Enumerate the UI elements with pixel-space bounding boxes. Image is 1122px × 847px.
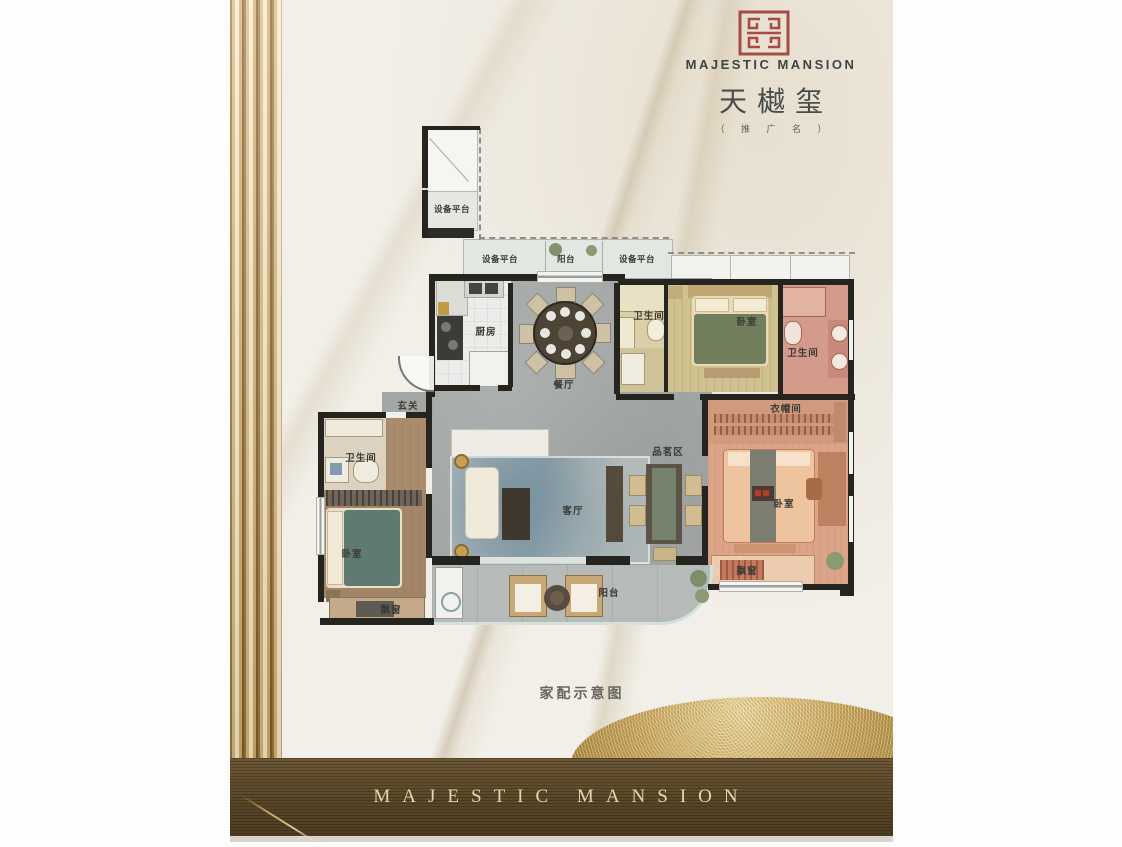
window [849,496,853,542]
tray-item [755,490,761,496]
wall-segment [426,494,432,558]
poster-page: { "brand": { "seal_icon": "majestic-mans… [0,0,1122,842]
wall-segment [426,390,432,468]
wall-segment [422,128,428,188]
wall-segment [508,283,513,387]
pillow [328,512,342,584]
bed-bench [734,544,796,553]
cutting-board [438,302,449,315]
room-label-equipment-platform-right: 设备平台 [619,253,655,265]
sink [832,354,847,369]
wall-segment [320,618,434,625]
stove-burner [441,322,451,332]
sliding-door [480,557,586,563]
window [849,432,853,474]
wall-segment [616,394,674,400]
wardrobe [326,490,422,506]
room-label-equipment-platform-left: 设备平台 [482,253,518,265]
window-mullion [730,256,731,280]
tea-table-runner [652,468,676,540]
dining-chair [596,324,610,342]
vanity [620,318,634,348]
room-label-foyer: 玄关 [397,398,418,412]
window [538,272,602,282]
entry-door-arc [398,356,434,392]
display-cabinet [606,466,623,542]
plate [575,311,585,321]
wall-segment [432,556,480,565]
wardrobe-row [714,426,834,435]
window [317,498,324,554]
wall-segment [700,394,855,400]
lounge-chair-cushion [515,584,541,612]
wall-segment [676,556,708,565]
sofa [466,468,498,538]
plan-caption: 家配示意图 [540,683,625,703]
room-label-bedroom-master: 卧室 [773,496,794,510]
wall-segment [422,126,480,130]
wardrobe-row [714,414,834,423]
wall-segment [664,283,668,392]
table-centerpiece [558,326,573,341]
bed-bench [704,368,760,378]
tea-stool [654,548,676,560]
room-label-cloakroom: 衣帽间 [770,401,802,415]
wall-segment [318,412,432,418]
wall-segment [432,385,480,391]
room-label-bedroom-north: 卧室 [736,314,757,328]
plate [581,328,591,338]
plate [561,349,571,359]
footer-band: MAJESTIC MANSION [230,758,893,836]
refrigerator [470,352,510,386]
wall-segment [614,283,620,394]
plant [690,570,707,587]
plant [586,245,597,256]
pillow [696,299,728,311]
wall-segment [428,228,474,238]
plate [546,311,556,321]
lounge-chair-cushion [571,584,597,612]
gold-fluted-side-bar [230,0,282,758]
balcony-table-top [550,591,564,605]
dining-chair [556,364,575,378]
toilet [785,322,801,344]
wall-segment [778,283,783,400]
floor-plan: 设备平台 设备平台 阳台 设备平台 厨房 餐厅 [0,0,1122,842]
window-band [672,256,849,280]
room-label-balcony-south: 阳台 [598,585,619,599]
room-label-equipment-platform-tower: 设备平台 [434,203,470,215]
toilet [648,320,664,340]
tea-chair [686,476,701,495]
wall-segment [702,400,708,456]
floor-lamp [456,456,467,467]
parapet-dashed-line [668,252,855,254]
plate [546,344,556,354]
parapet-dashed-line [479,237,669,239]
room-label-bedroom-west: 卧室 [341,546,362,560]
wall-segment [586,556,630,565]
plate [575,344,585,354]
room-label-bay-window-master: 飘窗 [736,563,757,577]
wall-segment [702,486,708,564]
plant [695,589,709,603]
room-label-tea-area: 品茗区 [652,444,684,458]
room-label-bay-window-west: 飘窗 [380,602,401,616]
sink-basin [485,283,498,294]
room-label-kitchen: 厨房 [475,324,496,338]
sink-basin [330,463,342,475]
room-label-living-room: 客厅 [562,503,583,517]
bathtub [326,420,382,436]
stove-burner [448,340,458,350]
shower [783,288,825,316]
tray-item [763,490,769,496]
window [720,582,802,591]
divider-line [602,241,603,277]
room-label-bathroom-north: 卫生间 [633,308,665,322]
tea-chair [686,506,701,525]
wall-segment [498,385,512,391]
sink-basin [469,283,482,294]
equipment-room [427,130,477,192]
plate [560,307,570,317]
room-label-bathroom-east: 卫生间 [787,345,819,359]
dining-chair [557,288,575,301]
dining-chair [520,325,533,343]
window [849,320,853,360]
tv-console [452,430,548,456]
window-mullion [790,256,791,280]
tea-chair [630,476,645,495]
wardrobe-column [834,402,846,442]
room-label-bathroom-west: 卫生间 [345,450,377,464]
sink [832,326,847,341]
plate [540,328,550,338]
stove [437,316,463,360]
footer-brand-text: MAJESTIC MANSION [230,758,893,836]
room-label-dining-room: 餐厅 [553,377,574,391]
pillow [734,299,766,311]
nightstand [668,286,682,299]
coffee-table [502,488,530,540]
tea-chair [630,506,645,525]
washing-machine-door [441,592,461,612]
desk [818,452,846,526]
parapet-dashed-line [479,128,481,240]
wall-segment [840,584,854,596]
door-opening [386,412,406,418]
wall-segment [618,279,854,285]
room-label-balcony-north: 阳台 [557,253,575,265]
laundry-cabinet [622,354,644,384]
plant [826,552,844,570]
desk-chair [806,478,822,500]
